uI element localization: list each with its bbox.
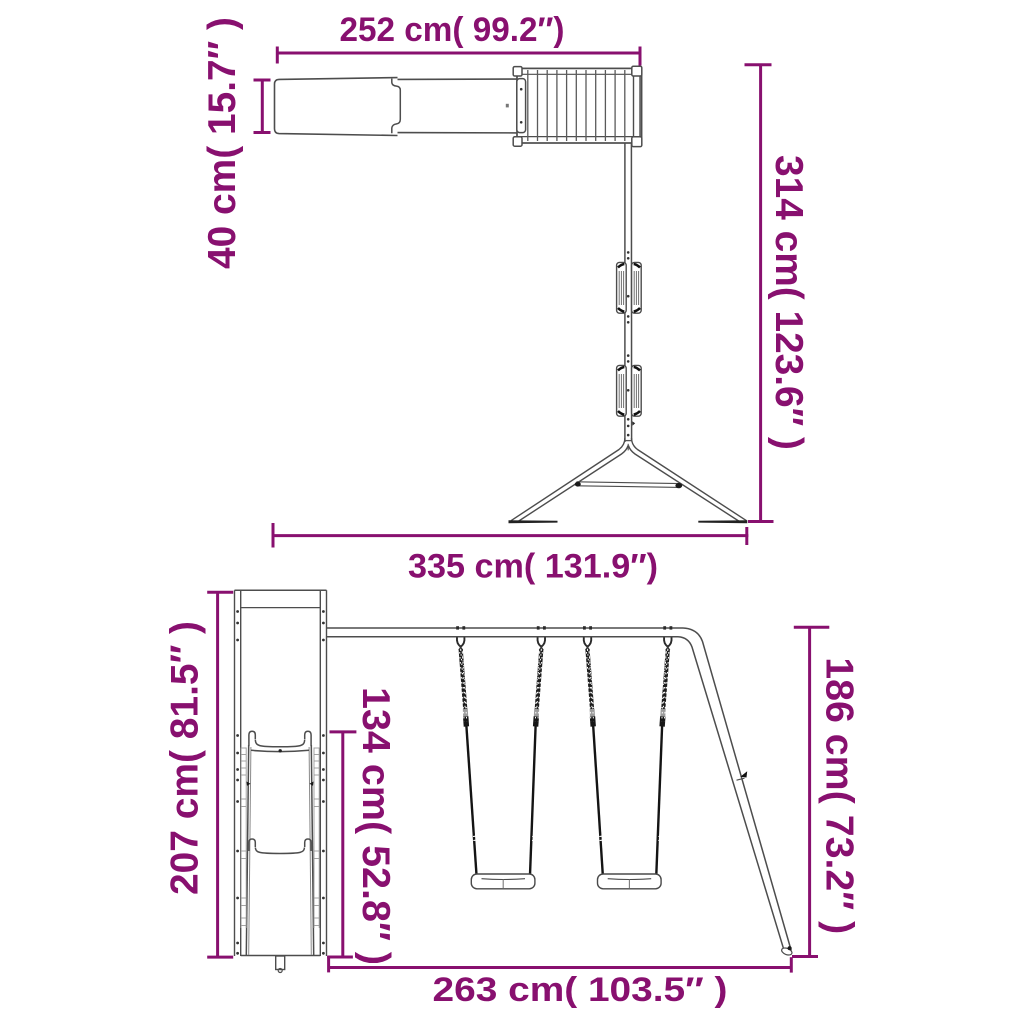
svg-text:335 cm( 131.9″): 335 cm( 131.9″) bbox=[408, 548, 658, 586]
svg-text:252 cm( 99.2″): 252 cm( 99.2″) bbox=[340, 11, 565, 49]
svg-text:263 cm( 103.5″ ): 263 cm( 103.5″ ) bbox=[433, 971, 728, 1009]
svg-text:134 cm( 52.8″ ): 134 cm( 52.8″ ) bbox=[354, 687, 397, 965]
svg-text:314 cm( 123.6″ ): 314 cm( 123.6″ ) bbox=[767, 155, 810, 450]
svg-text:207 cm( 81.5″ ): 207 cm( 81.5″ ) bbox=[164, 621, 207, 895]
svg-text:40 cm( 15.7″ ): 40 cm( 15.7″ ) bbox=[201, 17, 244, 269]
svg-text:186 cm( 73.2″ ): 186 cm( 73.2″ ) bbox=[818, 657, 861, 934]
